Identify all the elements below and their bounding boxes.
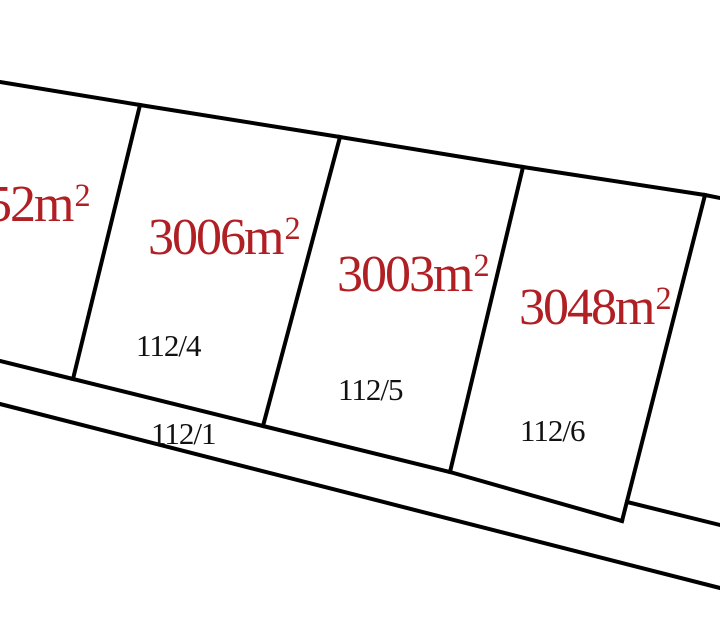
area-superscript: 2 (74, 179, 90, 211)
road-upper-edge-right-segment (627, 502, 720, 525)
area-value: 3003m (337, 246, 471, 303)
area-superscript: 2 (655, 282, 671, 314)
parcel-number-112-6: 112/6 (520, 415, 584, 446)
area-value: 52m (0, 176, 72, 233)
parcel-divider-4 (622, 195, 705, 521)
cadastral-plan: { "canvas": { "width": 720, "height": 61… (0, 0, 720, 618)
parcel-number-112-4: 112/4 (136, 330, 200, 361)
area-superscript: 2 (284, 212, 300, 244)
parcel-divider-3 (450, 167, 523, 472)
north-boundary-line (0, 82, 720, 198)
road-number-112-1: 112/1 (151, 418, 215, 449)
area-label-112-4: 3006m2 (148, 212, 301, 264)
area-value: 3048m (519, 279, 653, 336)
area-label-left-parcel: 52m2 (0, 179, 91, 231)
parcel-number-112-5: 112/5 (338, 374, 402, 405)
area-label-112-5: 3003m2 (337, 249, 490, 301)
road-lower-edge-line (0, 404, 720, 588)
area-value: 3006m (148, 209, 282, 266)
area-label-112-6: 3048m2 (519, 282, 672, 334)
parcel-divider-2 (263, 137, 340, 426)
area-superscript: 2 (473, 249, 489, 281)
parcel-divider-1 (73, 105, 140, 379)
